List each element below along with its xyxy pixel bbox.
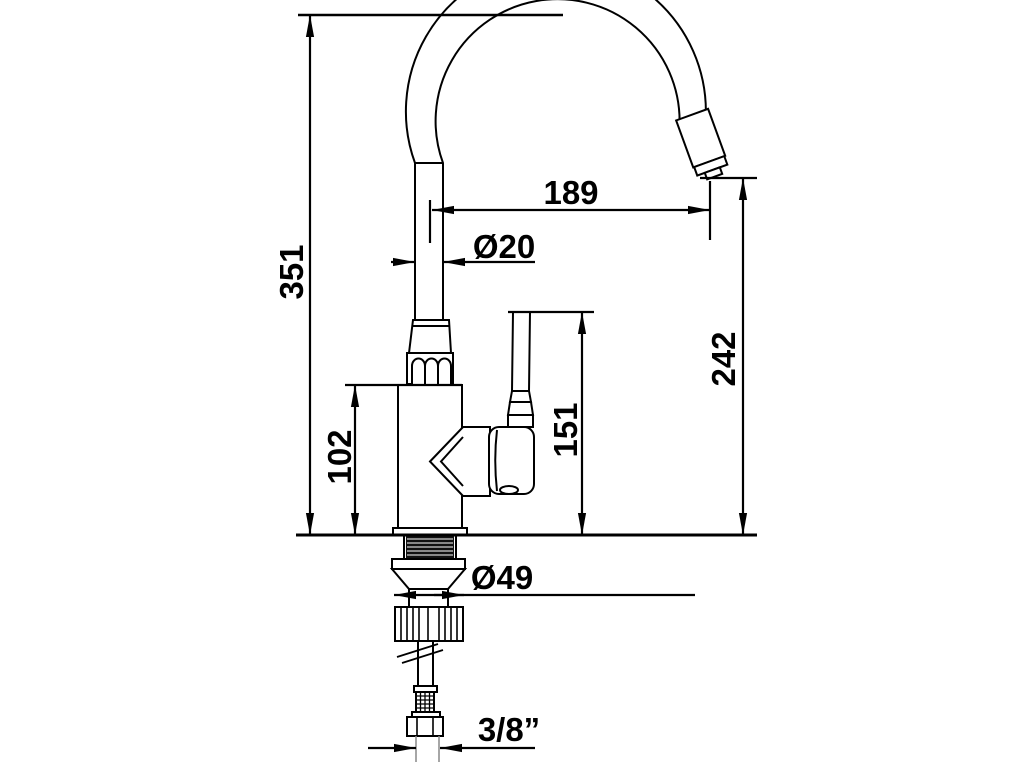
threaded-shank — [404, 535, 456, 559]
under-counter-assembly — [392, 535, 465, 762]
faucet-technical-drawing: 189 Ø20 351 102 151 242 Ø49 3/8” — [0, 0, 1024, 768]
hose-break-marks — [397, 644, 443, 663]
label-outlet-height: 242 — [705, 331, 742, 386]
label-overall-height: 351 — [273, 244, 310, 299]
faucet-object — [392, 0, 731, 762]
label-spout-diameter: Ø20 — [473, 228, 535, 265]
label-handle-height: 151 — [547, 402, 584, 457]
label-base-diameter: Ø49 — [471, 559, 533, 596]
label-spout-reach: 189 — [543, 174, 598, 211]
supply-hose — [397, 641, 443, 686]
shank-cone — [392, 569, 465, 589]
connector-hex-nut — [407, 717, 443, 736]
lever-taper-2 — [508, 402, 533, 415]
lever-taper-3 — [508, 415, 533, 427]
spout-collar — [407, 320, 453, 384]
connector-stub — [416, 736, 439, 762]
shank-flange — [392, 559, 465, 569]
aerator — [676, 109, 731, 183]
crown-arch — [438, 359, 451, 384]
label-body-height: 102 — [321, 429, 358, 484]
spout-outer-edge — [406, 0, 706, 321]
crown-arch — [425, 359, 438, 384]
collar-adapter — [409, 320, 451, 353]
crown-arch — [412, 359, 425, 384]
lever-rod — [512, 312, 530, 391]
lever-taper-1 — [510, 391, 531, 402]
nut-outline — [395, 607, 463, 641]
shank-neck — [409, 589, 448, 607]
handle-lever — [508, 312, 533, 427]
drawing-canvas: 189 Ø20 351 102 151 242 Ø49 3/8” — [0, 0, 1024, 768]
spout-arc — [406, 0, 706, 321]
mounting-nut — [395, 607, 463, 641]
label-connection-size: 3/8” — [478, 711, 540, 748]
spout-inner-edge — [436, 0, 680, 321]
crimp-grid — [416, 692, 434, 712]
hose-connector — [407, 686, 443, 762]
